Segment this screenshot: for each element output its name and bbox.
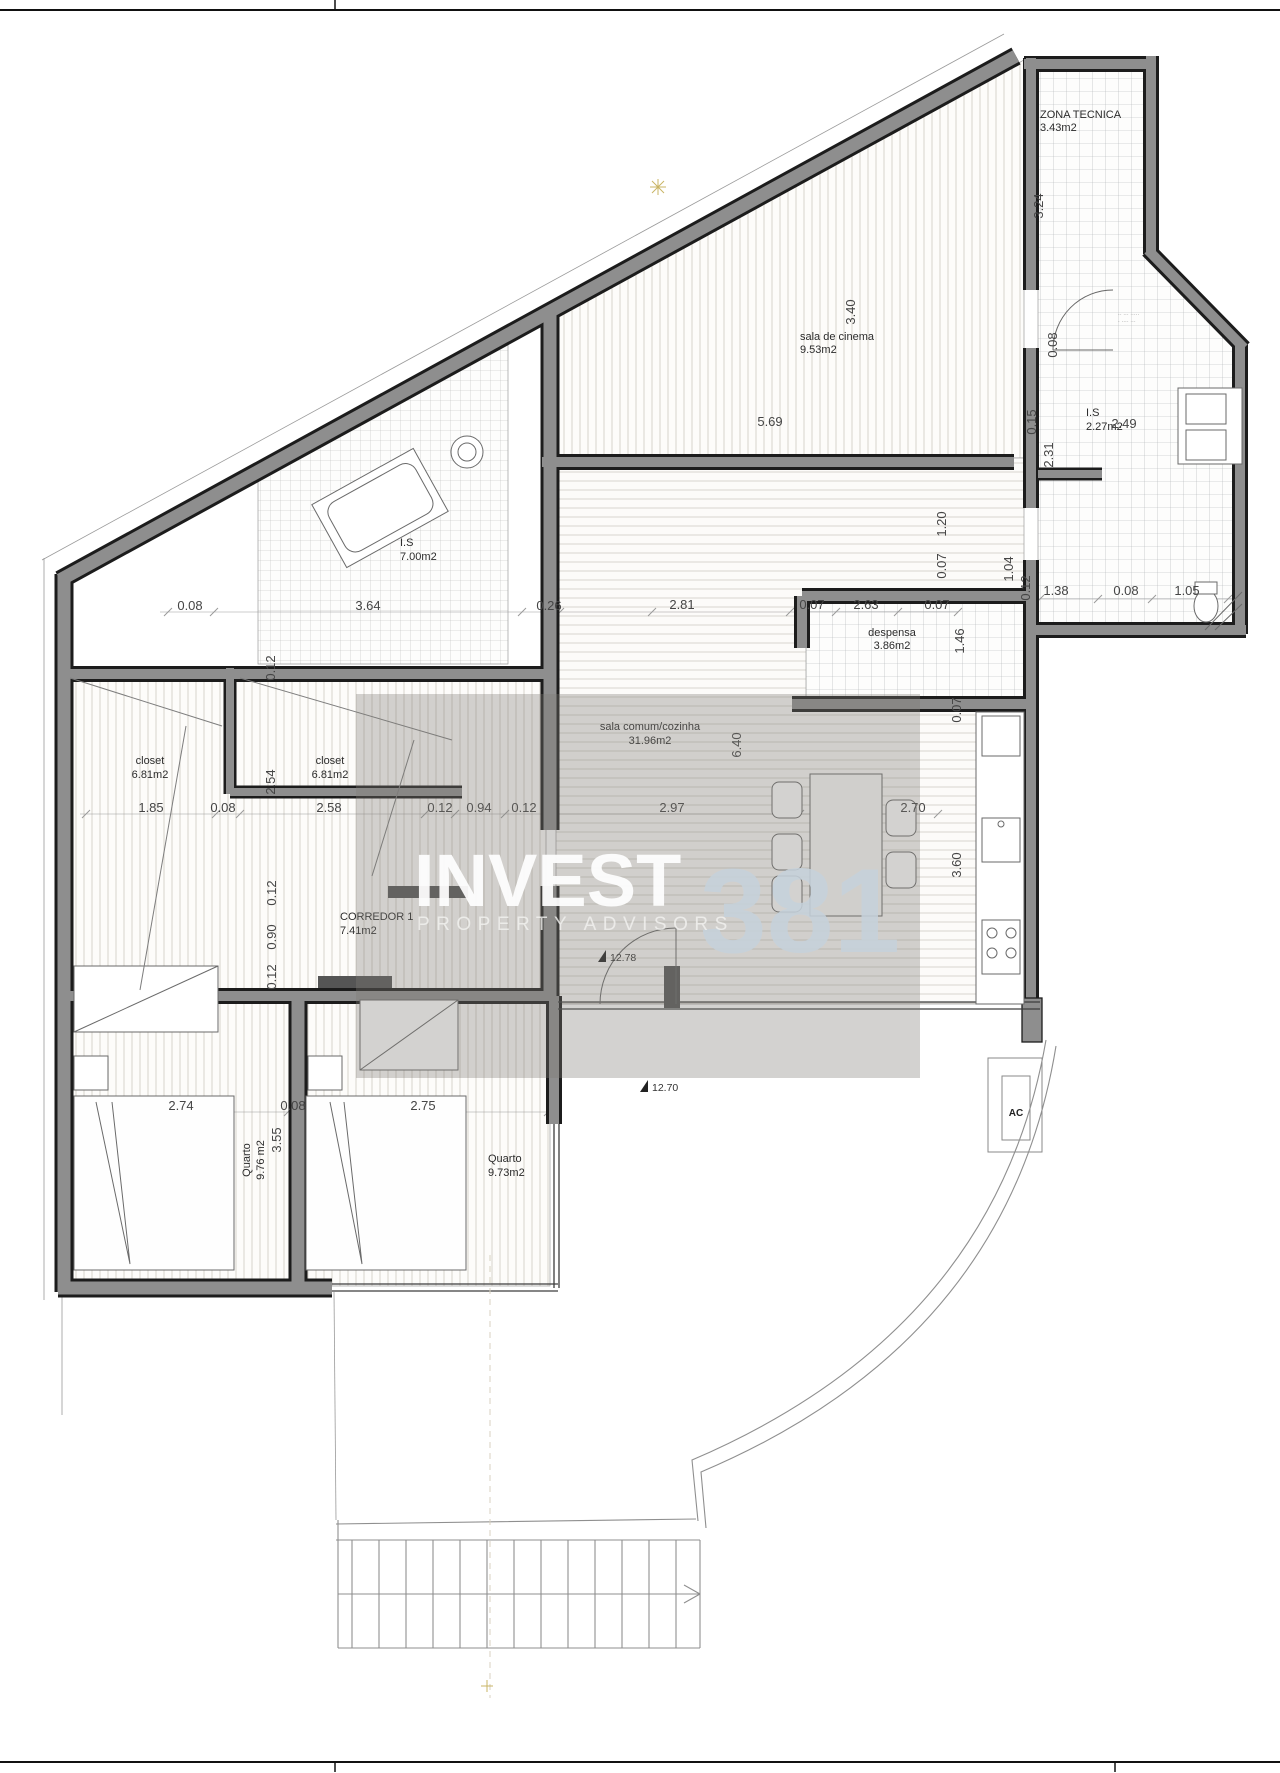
small-note-line1: ·· ··· ·····: [1118, 312, 1140, 318]
room-area-closet-2: 6.81m2: [312, 769, 349, 781]
room-name-quarto-2: Quarto: [488, 1153, 522, 1165]
despensa-floor: [806, 598, 1024, 702]
faucet: [998, 821, 1004, 827]
dimension-label: 2.58: [316, 800, 341, 815]
room-area-sala-cinema: 9.53m2: [800, 344, 837, 356]
dimension-label: 3.55: [269, 1127, 284, 1152]
dimension-label: 0.07: [949, 697, 964, 722]
dimension-label: 0.08: [1113, 583, 1138, 598]
sink-basin: [1186, 394, 1226, 424]
bed: [74, 1096, 234, 1270]
room-name-despensa: despensa: [868, 627, 917, 639]
room-name-is-grande: I.S: [400, 537, 413, 549]
fridge: [982, 716, 1020, 756]
watermark-tagline: PROPERTY ADVISORS: [417, 914, 734, 935]
watermark-brand: INVEST: [414, 839, 681, 922]
dimension-label: 1.05: [1174, 583, 1199, 598]
room-name-quarto-1: Quarto: [241, 1143, 253, 1177]
dimension-label: 5.69: [757, 414, 782, 429]
sink-basin: [1186, 430, 1226, 460]
ac-label: AC: [1009, 1108, 1023, 1119]
dimension-label: 0.07: [799, 597, 824, 612]
dimension-label: 2.31: [1041, 442, 1056, 467]
burner: [987, 948, 997, 958]
bed: [306, 1096, 466, 1270]
dimension-label: 0.07: [924, 597, 949, 612]
dimension-label: 1.20: [934, 511, 949, 536]
dimension-label: 0.08: [1045, 332, 1060, 357]
room-area-quarto-1: 9.76 m2: [255, 1140, 267, 1180]
room-name-closet-1: closet: [136, 755, 165, 767]
dimension-label: 2.54: [263, 769, 278, 794]
dimension-label: 0.12: [264, 880, 279, 905]
nightstand: [308, 1056, 342, 1090]
dimension-label: 1.85: [138, 800, 163, 815]
room-name-sala-cinema: sala de cinema: [800, 331, 875, 343]
dimension-label: 3.40: [843, 299, 858, 324]
dimension-label: 0.07: [934, 553, 949, 578]
level-value: 12.70: [652, 1082, 678, 1094]
burner: [1006, 948, 1016, 958]
dimension-label: 1.04: [1001, 556, 1016, 581]
dimension-label: 1.46: [952, 628, 967, 653]
wall-end-cap: [1022, 998, 1042, 1042]
room-name-zona-tecnica: ZONA TECNICA: [1040, 109, 1122, 121]
dimension-label: 2.74: [168, 1098, 193, 1113]
floor-plan-page: 12.78 12.70 ZONA TECNICA 3.43m2 sala de …: [0, 0, 1280, 1773]
room-area-despensa: 3.86m2: [874, 640, 911, 652]
floor-plan-drawing: 12.78 12.70 ZONA TECNICA 3.43m2 sala de …: [0, 0, 1280, 1773]
burner: [987, 928, 997, 938]
survey-mark: [650, 179, 666, 195]
dimension-label: 0.15: [1024, 409, 1039, 434]
room-area-quarto-2: 9.73m2: [488, 1167, 525, 1179]
dimension-label: 0.12: [1018, 575, 1033, 600]
dimension-label: 3.24: [1031, 193, 1046, 218]
dimension-label: 0.08: [210, 800, 235, 815]
room-area-closet-1: 6.81m2: [132, 769, 169, 781]
room-name-closet-2: closet: [316, 755, 345, 767]
dimension-label: 3.60: [949, 852, 964, 877]
dimension-label: 0.26: [536, 598, 561, 613]
room-area-is-grande: 7.00m2: [400, 551, 437, 563]
dimension-label: 2.81: [669, 597, 694, 612]
dimension-label: 2.49: [1111, 416, 1136, 431]
nightstand: [74, 1056, 108, 1090]
watermark: INVEST 381 PROPERTY ADVISORS: [356, 694, 920, 1078]
dimension-label: 0.12: [264, 964, 279, 989]
watermark-number: 381: [700, 844, 900, 978]
stove: [982, 920, 1020, 974]
dimension-label: 2.75: [410, 1098, 435, 1113]
dimension-label: 0.12: [263, 655, 278, 680]
room-name-is-pequena: I.S: [1086, 407, 1099, 419]
dimension-label: 0.08: [177, 598, 202, 613]
dimension-label: 0.90: [264, 924, 279, 949]
burner: [1006, 928, 1016, 938]
dimension-label: 3.64: [355, 598, 380, 613]
dimension-label: 2.63: [853, 597, 878, 612]
dimension-label: 0.08: [280, 1098, 305, 1113]
dimension-label: 1.38: [1043, 583, 1068, 598]
small-note-line2: · ···· ···: [1118, 319, 1136, 325]
toilet: [458, 443, 476, 461]
room-area-zona-tecnica: 3.43m2: [1040, 122, 1077, 134]
